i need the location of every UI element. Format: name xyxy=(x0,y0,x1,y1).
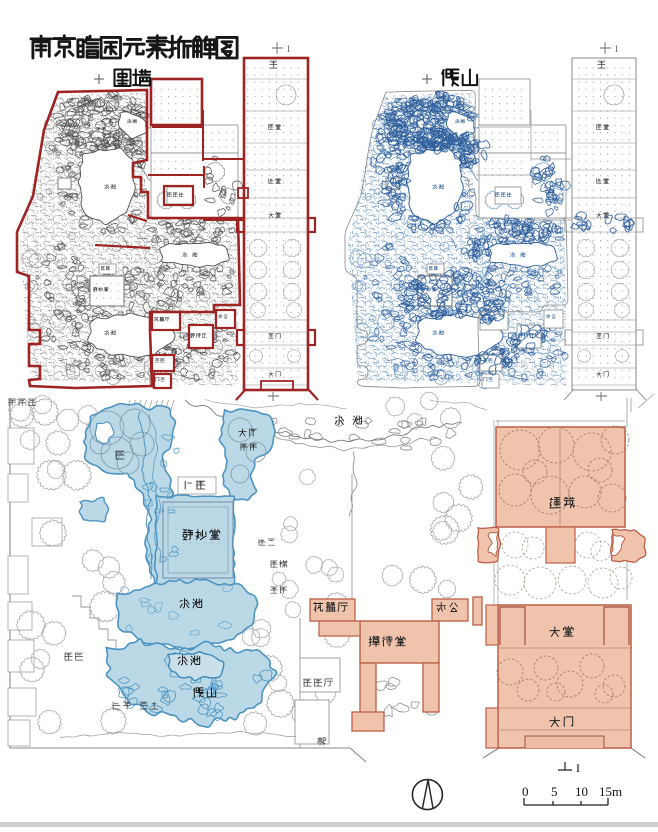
svg-text:10: 10 xyxy=(575,784,588,799)
svg-text:I: I xyxy=(615,44,618,54)
svg-text:15m: 15m xyxy=(599,784,622,799)
svg-text:0: 0 xyxy=(522,784,529,799)
svg-text:I: I xyxy=(576,761,580,775)
svg-text:I: I xyxy=(287,44,290,54)
svg-text:5: 5 xyxy=(551,784,558,799)
